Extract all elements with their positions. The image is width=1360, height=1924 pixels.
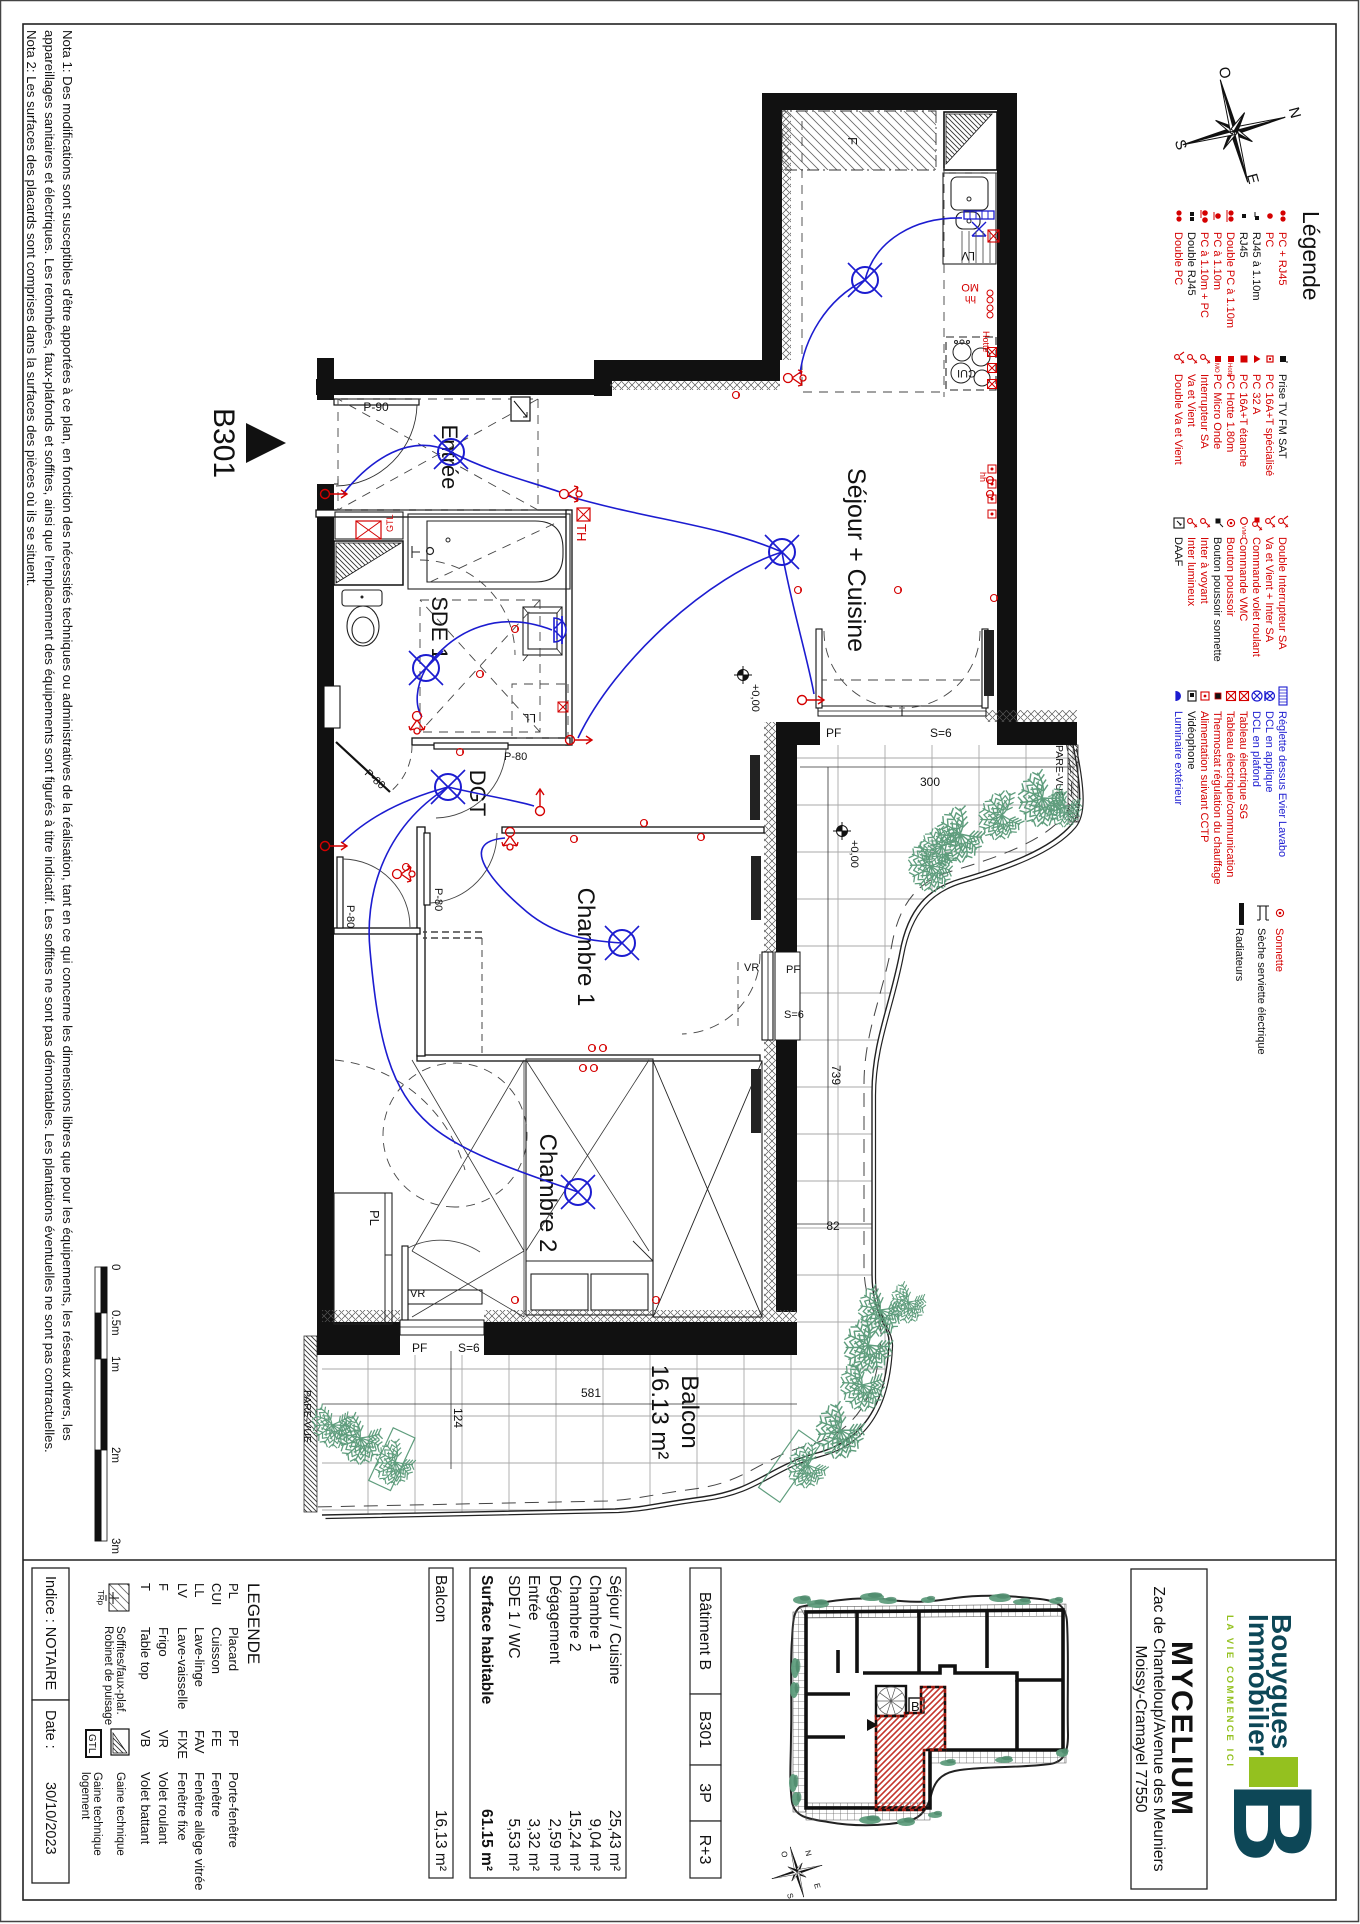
svg-text:PF: PF — [786, 964, 800, 976]
svg-text:LV: LV — [961, 249, 975, 263]
svg-text:Balcon: Balcon — [676, 1375, 703, 1448]
svg-text:Radiateurs: Radiateurs — [1233, 928, 1245, 982]
svg-text:Double Interrupteur SA: Double Interrupteur SA — [1276, 537, 1288, 650]
svg-text:Volet battant: Volet battant — [138, 1772, 153, 1845]
svg-text:P-80: P-80 — [504, 751, 527, 763]
svg-text:F: F — [845, 137, 860, 145]
svg-text:Table top: Table top — [138, 1627, 153, 1680]
svg-text:+0,00: +0,00 — [848, 840, 860, 868]
svg-text:S=6: S=6 — [458, 1341, 480, 1355]
svg-text:PC + RJ45: PC + RJ45 — [1276, 232, 1288, 286]
svg-text:3m: 3m — [109, 1538, 121, 1554]
svg-text:Réglette dessus Evier Lavabo: Réglette dessus Evier Lavabo — [1276, 711, 1288, 857]
svg-text:Moissy-Cramayel 77550: Moissy-Cramayel 77550 — [1132, 1645, 1149, 1812]
svg-text:Gaine technique: Gaine technique — [114, 1772, 126, 1856]
svg-text:Bouton poussoir sonnette: Bouton poussoir sonnette — [1211, 537, 1223, 662]
svg-text:Zac de Chanteloup/Avenue des M: Zac de Chanteloup/Avenue des Meuniers — [1150, 1587, 1167, 1872]
svg-text:TRp: TRp — [96, 1590, 105, 1606]
svg-text:TH: TH — [574, 524, 589, 541]
svg-text:Tableau électrique/communicati: Tableau électrique/communication — [1224, 711, 1236, 877]
svg-text:VB: VB — [138, 1730, 153, 1747]
svg-text:2m: 2m — [109, 1447, 121, 1463]
svg-text:Placard: Placard — [226, 1627, 241, 1671]
svg-text:Va et Vient: Va et Vient — [1185, 374, 1197, 427]
svg-text:300: 300 — [920, 775, 940, 789]
svg-text:B301: B301 — [696, 1711, 713, 1748]
svg-text:B: B — [1210, 1782, 1335, 1863]
svg-text:Sonnette: Sonnette — [1273, 928, 1285, 972]
svg-text:LV: LV — [175, 1583, 190, 1598]
svg-text:Entrée: Entrée — [437, 425, 462, 490]
svg-text:Date :: Date : — [42, 1710, 58, 1749]
svg-text:Fenêtre allège vitrée: Fenêtre allège vitrée — [192, 1772, 207, 1891]
svg-text:Cuisson: Cuisson — [209, 1627, 224, 1674]
svg-text:Nota 2: Les surfaces des placa: Nota 2: Les surfaces des placards sont c… — [24, 30, 39, 586]
svg-text:Alimentation suivant CCTP: Alimentation suivant CCTP — [1198, 711, 1210, 842]
svg-text:LL: LL — [192, 1583, 207, 1597]
svg-text:LL: LL — [522, 711, 536, 725]
svg-text:124: 124 — [451, 1408, 465, 1428]
svg-text:Bouton poussoir: Bouton poussoir — [1224, 537, 1236, 617]
svg-text:DAAF: DAAF — [1172, 537, 1184, 567]
svg-text:S=6: S=6 — [784, 1009, 804, 1021]
svg-text:Indice : NOTAIRE: Indice : NOTAIRE — [42, 1576, 58, 1690]
svg-text:Entrée: Entrée — [525, 1575, 542, 1621]
svg-text:DCL en plafond: DCL en plafond — [1250, 711, 1262, 787]
svg-text:hh: hh — [978, 472, 988, 482]
svg-text:R+3: R+3 — [696, 1835, 713, 1865]
svg-text:MO: MO — [1213, 363, 1219, 373]
svg-text:Inter lumineux: Inter lumineux — [1185, 537, 1197, 607]
svg-text:PC 32 A: PC 32 A — [1250, 374, 1262, 415]
svg-text:9,04 m²: 9,04 m² — [586, 1818, 603, 1871]
svg-text:PF: PF — [412, 1341, 427, 1355]
svg-text:Fenêtre fixe: Fenêtre fixe — [175, 1772, 190, 1841]
svg-text:PF: PF — [226, 1730, 241, 1747]
svg-text:Tableau électrique SG: Tableau électrique SG — [1237, 711, 1249, 819]
svg-text:15,24 m²: 15,24 m² — [566, 1810, 583, 1871]
svg-text:Soffites/faux-plaf.: Soffites/faux-plaf. — [114, 1626, 126, 1715]
svg-text:LA VIE COMMENCE ICI: LA VIE COMMENCE ICI — [1224, 1615, 1235, 1769]
svg-text:Double PC à 1.10m: Double PC à 1.10m — [1224, 232, 1236, 328]
svg-text:Sèche serviette électrique: Sèche serviette électrique — [1255, 928, 1267, 1055]
svg-text:PL: PL — [367, 1210, 382, 1226]
svg-text:S=6: S=6 — [930, 726, 952, 740]
svg-text:Chambre 2: Chambre 2 — [566, 1575, 583, 1652]
svg-text:Frigo: Frigo — [156, 1627, 171, 1657]
svg-text:VR: VR — [410, 1288, 425, 1300]
svg-text:Surface habitable: Surface habitable — [478, 1575, 495, 1705]
svg-text:3,32 m²: 3,32 m² — [525, 1818, 542, 1871]
svg-text:Chambre 1: Chambre 1 — [586, 1575, 603, 1652]
svg-text:Balcon: Balcon — [432, 1575, 449, 1622]
svg-text:PF: PF — [826, 726, 841, 740]
svg-text:Vidéophone: Vidéophone — [1185, 711, 1197, 770]
svg-text:FE: FE — [209, 1730, 224, 1747]
svg-text:RJ45: RJ45 — [1237, 232, 1249, 258]
svg-text:logement: logement — [79, 1772, 91, 1820]
svg-text:MO: MO — [961, 281, 979, 293]
svg-text:Lave-linge: Lave-linge — [192, 1627, 207, 1687]
svg-text:PC à 1.10m + PC: PC à 1.10m + PC — [1198, 232, 1210, 318]
svg-text:LEGENDE: LEGENDE — [244, 1583, 263, 1664]
svg-text:3P: 3P — [696, 1783, 713, 1803]
svg-text:P-80: P-80 — [344, 905, 356, 928]
svg-text:Séjour / Cuisine: Séjour / Cuisine — [606, 1575, 623, 1684]
svg-text:Commande VMC: Commande VMC — [1237, 537, 1249, 621]
svg-text:Séjour + Cuisine: Séjour + Cuisine — [842, 468, 870, 652]
svg-text:Lave-vaisselle: Lave-vaisselle — [175, 1627, 190, 1709]
svg-text:PC 16A+T étanche: PC 16A+T étanche — [1237, 374, 1249, 467]
svg-text:PC Micro Onde: PC Micro Onde — [1211, 374, 1223, 449]
svg-text:MYCELIUM: MYCELIUM — [1165, 1641, 1198, 1817]
svg-text:Robinet de puisage: Robinet de puisage — [102, 1626, 114, 1725]
svg-text:0.5m: 0.5m — [109, 1310, 121, 1336]
svg-text:Bâtiment B: Bâtiment B — [696, 1592, 713, 1670]
svg-text:P-90: P-90 — [363, 400, 389, 414]
svg-text:SDE 1 / WC: SDE 1 / WC — [505, 1575, 522, 1659]
svg-text:Prise TV FM SAT: Prise TV FM SAT — [1276, 374, 1288, 459]
svg-text:Va et Vient + Inter SA: Va et Vient + Inter SA — [1263, 537, 1275, 643]
svg-text:581: 581 — [581, 1386, 601, 1400]
svg-text:Double RJ45: Double RJ45 — [1185, 232, 1197, 296]
svg-text:P-80: P-80 — [432, 888, 444, 911]
svg-text:T: T — [138, 1583, 153, 1591]
svg-text:Légende: Légende — [1298, 211, 1324, 301]
svg-text:Double PC: Double PC — [1172, 232, 1184, 285]
svg-text:Commande volet roulant: Commande volet roulant — [1250, 537, 1262, 657]
svg-text:Volet roulant: Volet roulant — [156, 1772, 171, 1845]
svg-text:Nota 1: Des modifications sont: Nota 1: Des modifications sont susceptib… — [60, 30, 75, 1441]
svg-text:appareillages sanitaires et él: appareillages sanitaires et électriques.… — [42, 30, 57, 1453]
svg-text:PC 16A+T spécialisé: PC 16A+T spécialisé — [1263, 374, 1275, 476]
svg-text:PARE-VUE: PARE-VUE — [301, 1390, 313, 1443]
svg-text:Chambre 1: Chambre 1 — [572, 888, 599, 1007]
svg-text:Chambre 2: Chambre 2 — [534, 1134, 561, 1253]
svg-text:GTL: GTL — [86, 1734, 97, 1754]
svg-text:5,53 m²: 5,53 m² — [505, 1818, 522, 1871]
svg-text:1m: 1m — [109, 1356, 121, 1372]
svg-text:+0,00: +0,00 — [749, 684, 761, 712]
svg-text:61.15 m²: 61.15 m² — [478, 1809, 495, 1871]
svg-text:Interrupteur SA: Interrupteur SA — [1198, 374, 1210, 449]
svg-text:PC Hotte 1.80m: PC Hotte 1.80m — [1224, 374, 1236, 452]
svg-text:0: 0 — [109, 1264, 121, 1270]
svg-text:Thermostat régulation du chauf: Thermostat régulation du chauffage — [1211, 711, 1223, 884]
svg-text:Luminaire extérieur: Luminaire extérieur — [1172, 711, 1184, 805]
svg-text:Double Va et Vient: Double Va et Vient — [1172, 374, 1184, 465]
svg-text:Gaine technique: Gaine technique — [91, 1772, 103, 1856]
svg-text:Immobilier: Immobilier — [1243, 1614, 1274, 1756]
svg-text:GTL: GTL — [385, 514, 395, 532]
svg-text:VR: VR — [156, 1730, 171, 1748]
svg-text:2,59 m²: 2,59 m² — [546, 1818, 563, 1871]
svg-text:SDE 1: SDE 1 — [427, 596, 452, 660]
svg-text:F: F — [156, 1583, 171, 1591]
svg-text:PC à 1.10m: PC à 1.10m — [1211, 232, 1223, 290]
svg-text:RJ45 à 1.10m: RJ45 à 1.10m — [1250, 232, 1262, 300]
svg-text:Dégagement: Dégagement — [546, 1575, 563, 1664]
svg-text:Fenêtre: Fenêtre — [209, 1772, 224, 1817]
svg-text:16,13 m²: 16,13 m² — [432, 1810, 449, 1871]
svg-text:25,43 m²: 25,43 m² — [606, 1810, 623, 1871]
svg-text:30/10/2023: 30/10/2023 — [42, 1782, 58, 1855]
svg-text:B301: B301 — [207, 408, 240, 478]
svg-text:82: 82 — [826, 1219, 840, 1233]
svg-text:PL: PL — [226, 1583, 241, 1599]
svg-text:CUI: CUI — [957, 367, 976, 379]
svg-text:hh: hh — [965, 293, 976, 304]
svg-text:PC: PC — [1263, 232, 1275, 247]
svg-text:Porte-fenêtre: Porte-fenêtre — [226, 1772, 241, 1848]
svg-text:FIXE: FIXE — [175, 1730, 190, 1759]
svg-text:16.13 m²: 16.13 m² — [646, 1365, 673, 1460]
svg-text:739: 739 — [829, 1065, 843, 1085]
svg-text:DCL en applique: DCL en applique — [1263, 711, 1275, 793]
svg-text:FAV: FAV — [192, 1730, 207, 1754]
svg-text:Inter à voyant: Inter à voyant — [1198, 537, 1210, 604]
svg-text:VR: VR — [744, 962, 759, 974]
svg-text:CUI: CUI — [209, 1583, 224, 1605]
